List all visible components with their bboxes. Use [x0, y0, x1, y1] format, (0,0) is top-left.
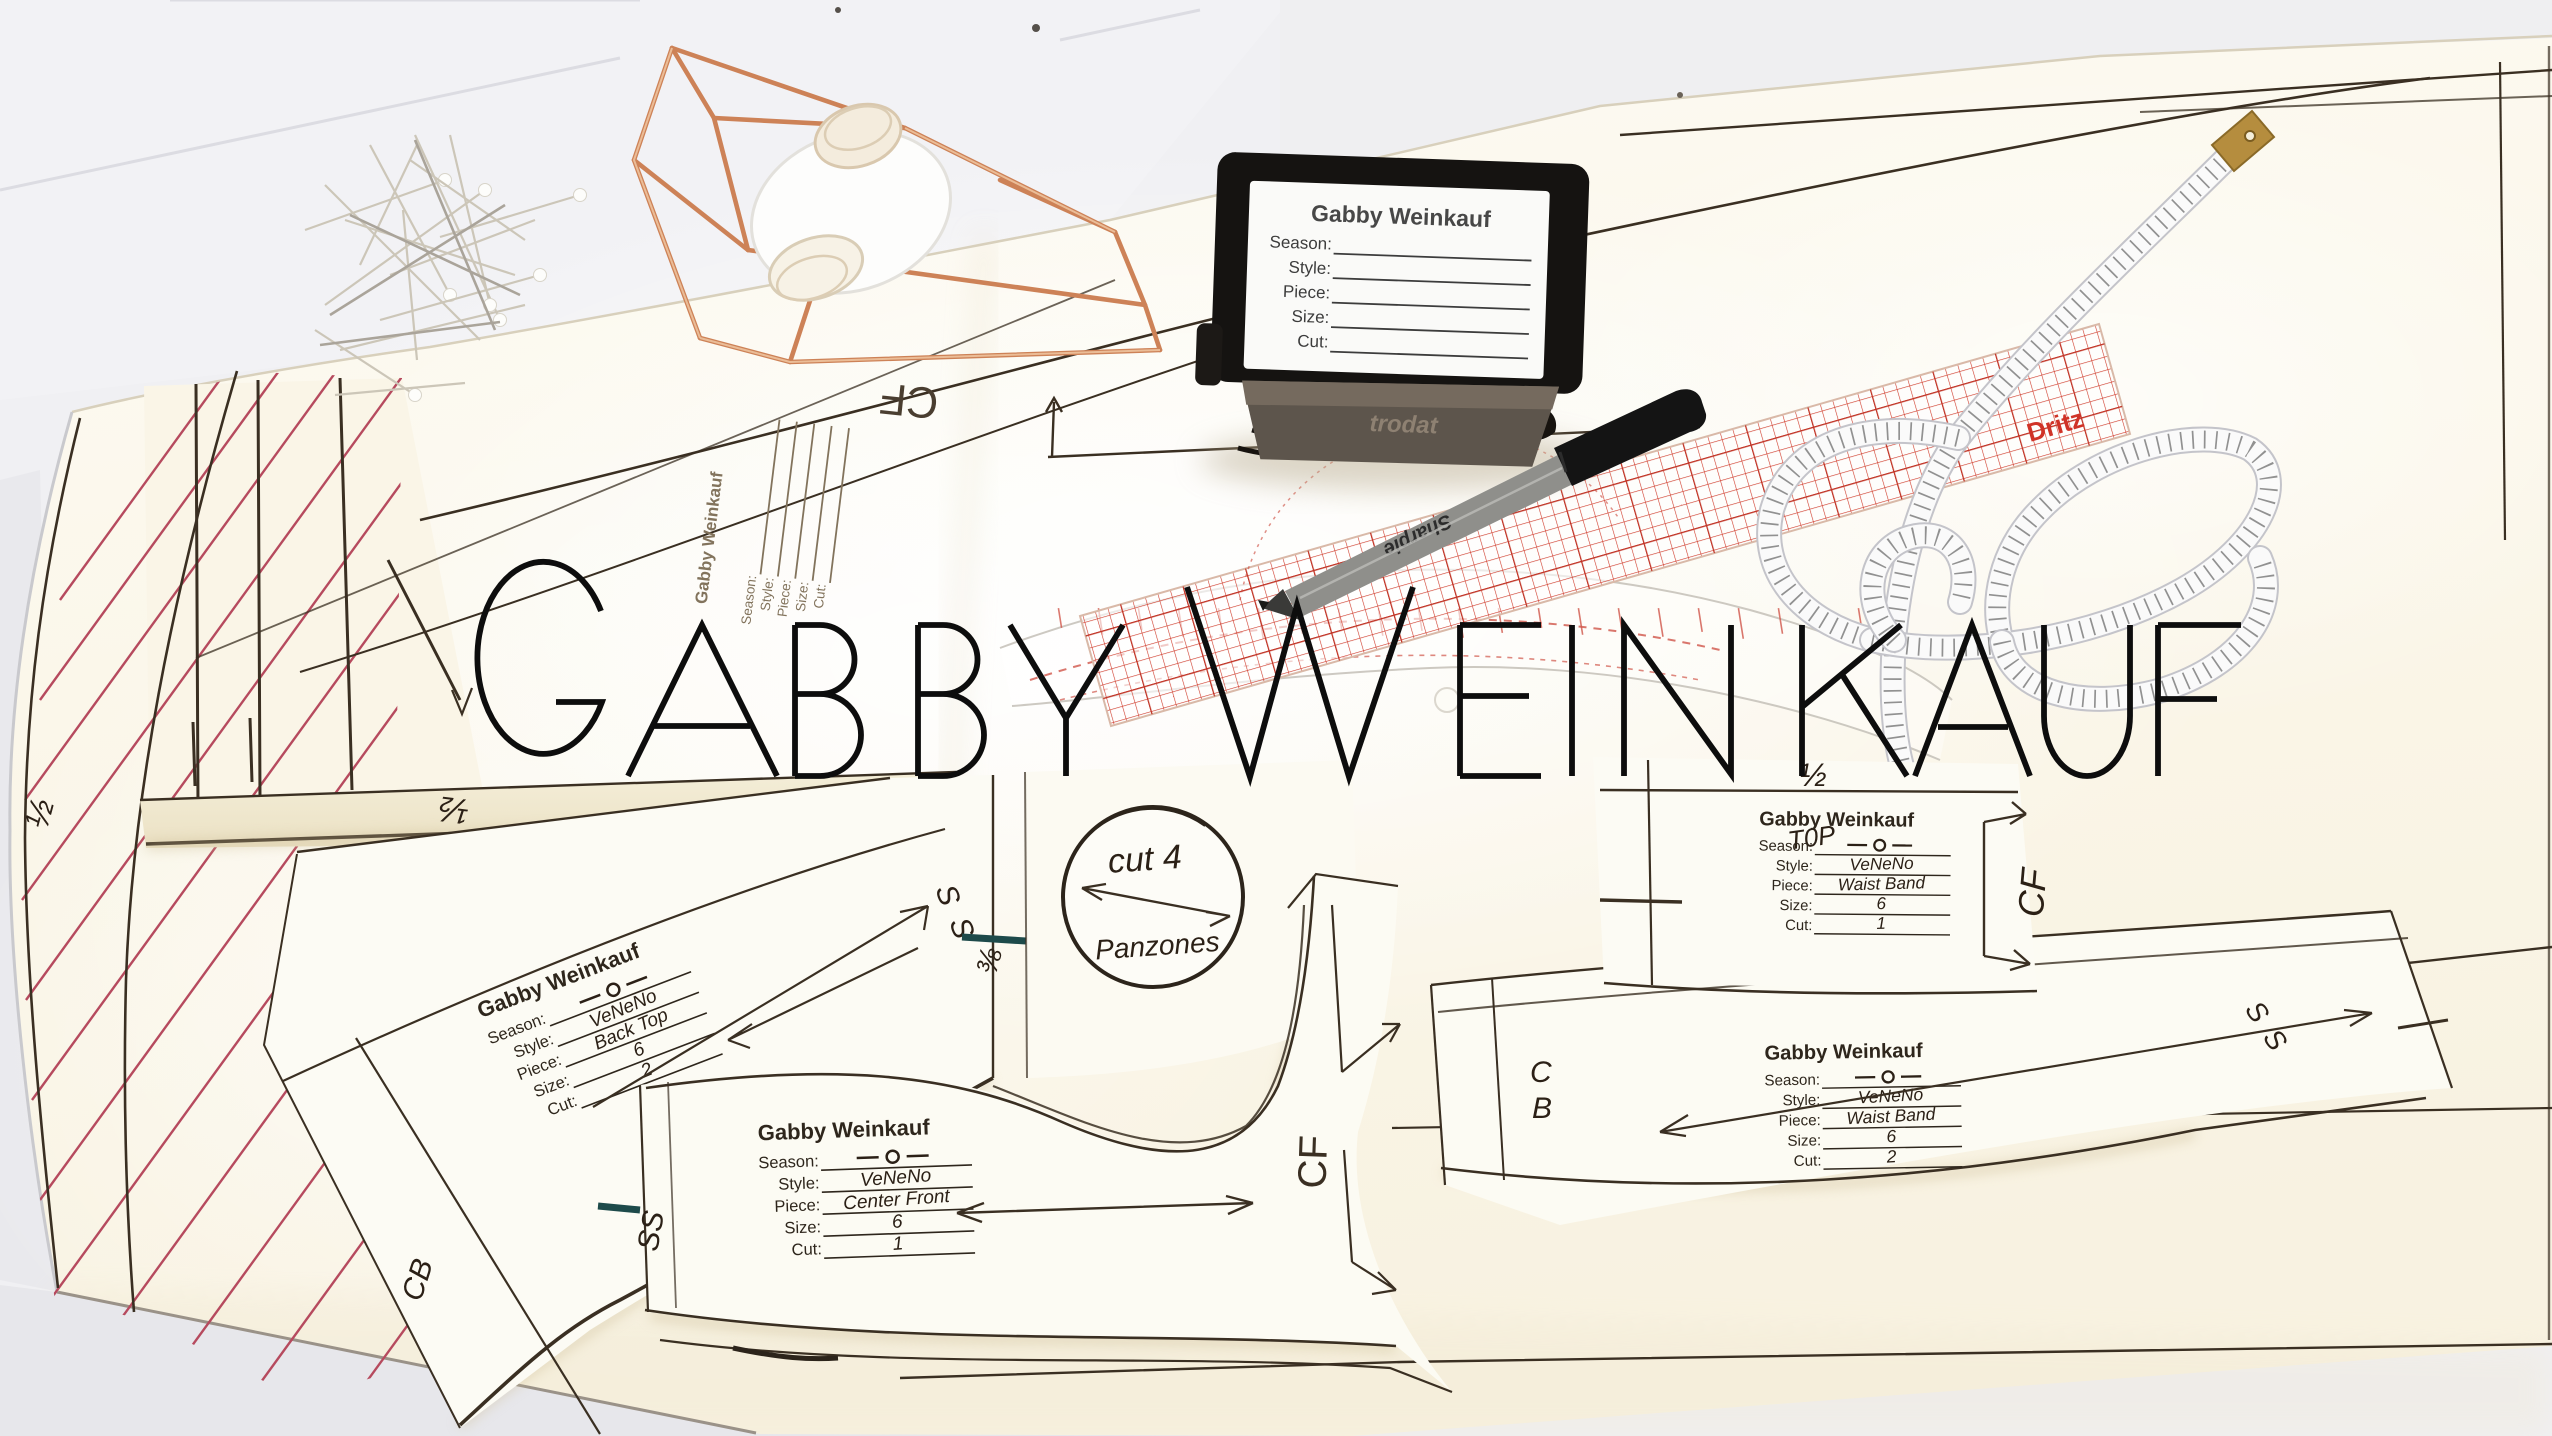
svg-text:Waist Band: Waist Band — [1838, 873, 1926, 894]
svg-text:VeNeNo: VeNeNo — [1849, 854, 1913, 875]
svg-text:Season:: Season: — [1759, 838, 1814, 854]
svg-text:C: C — [1530, 1056, 1552, 1089]
svg-text:Style:: Style: — [1776, 858, 1813, 874]
svg-text:½: ½ — [436, 788, 471, 832]
svg-text:Piece:: Piece: — [774, 1196, 820, 1216]
svg-text:6: 6 — [1886, 1126, 1897, 1146]
svg-text:Size:: Size: — [1291, 307, 1329, 327]
svg-text:SS: SS — [632, 1208, 671, 1253]
svg-text:Style:: Style: — [778, 1174, 820, 1193]
svg-text:Gabby Weinkauf: Gabby Weinkauf — [1759, 808, 1914, 831]
svg-text:CF: CF — [2010, 865, 2055, 918]
svg-text:Season:: Season: — [1269, 232, 1332, 253]
svg-text:trodat: trodat — [1369, 410, 1439, 439]
svg-text:6: 6 — [891, 1211, 903, 1233]
svg-text:CF: CF — [1290, 1134, 1336, 1189]
svg-text:Piece:: Piece: — [1778, 1112, 1820, 1130]
svg-text:Season:: Season: — [758, 1152, 819, 1172]
svg-text:Piece:: Piece: — [1283, 282, 1331, 303]
svg-text:B: B — [1532, 1092, 1552, 1125]
svg-text:1: 1 — [1876, 914, 1886, 933]
svg-text:2: 2 — [1885, 1146, 1897, 1167]
svg-text:Cut:: Cut: — [1297, 331, 1329, 351]
svg-text:Style:: Style: — [1288, 258, 1331, 278]
svg-text:Size:: Size: — [1779, 898, 1812, 914]
svg-text:Cut:: Cut: — [791, 1240, 822, 1259]
svg-text:Cut:: Cut: — [1785, 918, 1812, 934]
svg-text:Cut:: Cut: — [811, 583, 829, 609]
svg-text:cut 4: cut 4 — [1107, 838, 1183, 881]
svg-text:1: 1 — [892, 1233, 904, 1255]
svg-text:Size:: Size: — [784, 1218, 821, 1237]
svg-text:CF: CF — [877, 373, 940, 428]
svg-text:Cut:: Cut: — [1794, 1152, 1822, 1169]
svg-text:6: 6 — [1876, 894, 1886, 913]
svg-text:Piece:: Piece: — [1771, 878, 1812, 894]
svg-text:Season:: Season: — [1764, 1072, 1820, 1090]
svg-text:Size:: Size: — [1787, 1132, 1821, 1150]
svg-text:Gabby Weinkauf: Gabby Weinkauf — [1764, 1040, 1923, 1065]
